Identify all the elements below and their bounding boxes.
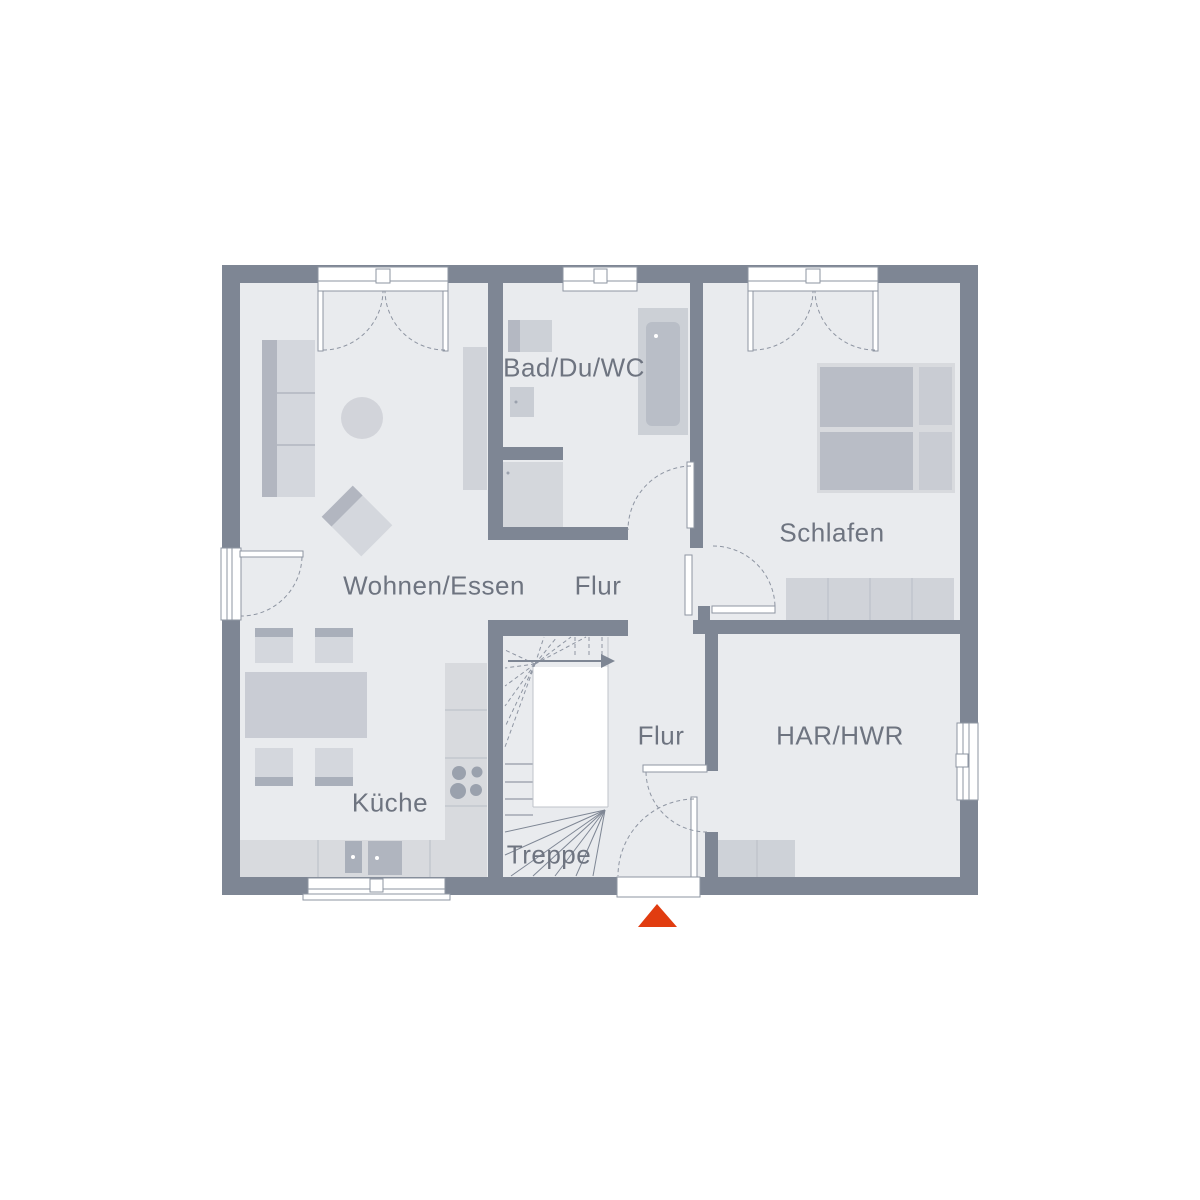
coffee-table: [341, 397, 383, 439]
har-cabinet: [718, 840, 795, 877]
entrance-marker-icon: [638, 904, 677, 927]
floorplan-page: Bad/Du/WC Schlafen Wohnen/Essen Flur Flu…: [0, 0, 1200, 1200]
wall-stair-top: [488, 620, 628, 636]
washbasin: [508, 320, 552, 352]
window-kitchen: [303, 878, 450, 900]
toilet: [510, 387, 534, 417]
sofa: [262, 340, 315, 497]
window-utility-right: [956, 723, 978, 800]
sideboard: [463, 347, 487, 490]
bathtub: [638, 308, 688, 435]
oven: [368, 841, 402, 875]
room-label-treppe: Treppe: [507, 840, 591, 871]
room-label-bad: Bad/Du/WC: [503, 353, 645, 384]
room-label-flur-lower: Flur: [638, 721, 685, 752]
bed: [817, 363, 955, 493]
wall-bedroom-utility: [693, 620, 960, 634]
wall-living-bath: [488, 283, 503, 540]
wall-bath-stub: [497, 447, 563, 460]
wall-stub-bedroom-door: [698, 606, 710, 620]
room-label-har-hwr: HAR/HWR: [776, 721, 904, 752]
room-label-schlafen: Schlafen: [779, 518, 884, 549]
wardrobe: [786, 578, 954, 620]
window-bath: [563, 267, 637, 291]
wall-stair-left: [488, 620, 503, 877]
wall-hall-utility-upper: [705, 634, 718, 771]
stair-landing: [533, 667, 608, 807]
room-label-wohnen-essen: Wohnen/Essen: [343, 571, 525, 602]
wall-bath-bottom: [488, 527, 628, 540]
room-label-kueche: Küche: [352, 788, 428, 819]
wall-hall-utility-lower: [705, 832, 718, 877]
shower: [498, 462, 563, 527]
room-label-flur-upper: Flur: [575, 571, 622, 602]
